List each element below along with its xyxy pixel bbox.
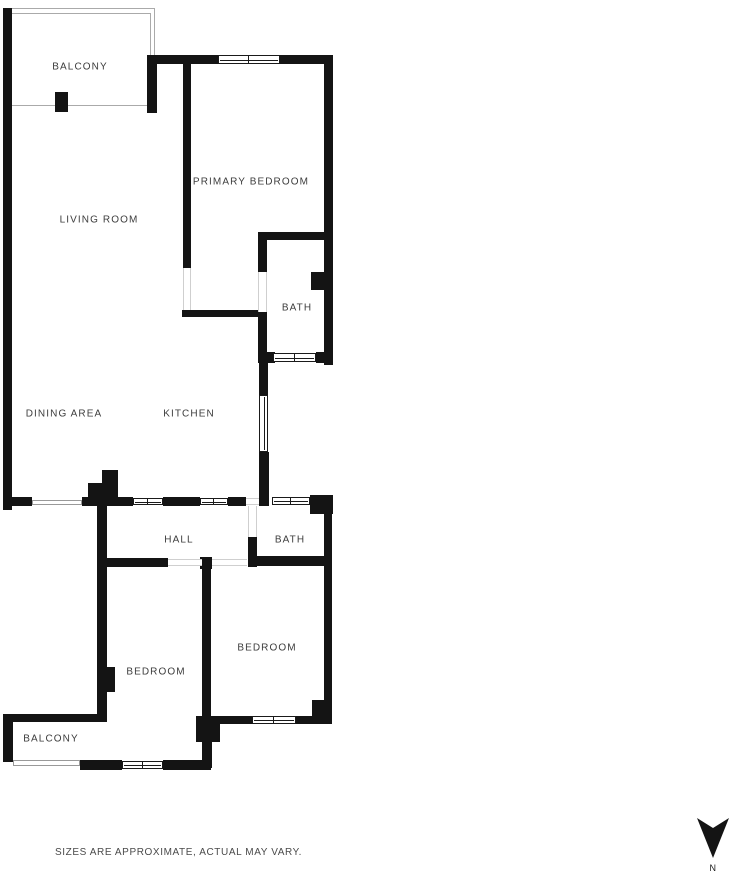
wall-segment	[228, 497, 246, 506]
wall-segment	[248, 556, 332, 566]
wall-segment	[8, 714, 98, 722]
wall-segment	[3, 8, 12, 510]
room-label-bath-bottom: BATH	[275, 535, 305, 546]
wall-segment	[311, 272, 325, 290]
window-symbol	[13, 760, 80, 766]
window-symbol	[273, 353, 316, 362]
room-label-living-room: LIVING ROOM	[60, 215, 139, 226]
wall-segment	[211, 716, 252, 724]
north-label: N	[696, 863, 730, 872]
window-symbol	[252, 716, 296, 724]
compass: N	[696, 816, 730, 872]
wall-segment	[183, 57, 191, 268]
wall-segment	[80, 760, 122, 770]
wall-segment	[259, 452, 269, 506]
wall-segment	[163, 497, 200, 506]
room-label-bedroom-left: BEDROOM	[126, 667, 185, 678]
wall-segment	[312, 700, 332, 722]
wall-segment	[182, 310, 263, 317]
door-opening	[246, 498, 259, 505]
door-opening	[183, 268, 191, 310]
wall-segment	[202, 558, 211, 718]
wall-segment	[55, 92, 68, 112]
room-label-bath-top: BATH	[282, 303, 312, 314]
door-opening	[258, 272, 267, 312]
room-label-primary-bedroom: PRIMARY BEDROOM	[193, 177, 309, 188]
wall-segment	[324, 495, 332, 722]
wall-segment	[258, 232, 267, 272]
wall-segment	[102, 470, 118, 484]
window-symbol	[32, 500, 82, 505]
wall-segment	[324, 55, 333, 365]
wall-segment	[3, 497, 32, 506]
disclaimer-text: SIZES ARE APPROXIMATE, ACTUAL MAY VARY.	[55, 847, 302, 858]
room-label-dining-area: DINING AREA	[26, 409, 103, 420]
window-symbol	[122, 761, 163, 769]
wall-segment	[82, 497, 133, 506]
room-label-balcony-top: BALCONY	[52, 62, 108, 73]
wall-segment	[262, 232, 333, 240]
door-opening	[168, 559, 202, 566]
door-opening	[248, 506, 257, 537]
wall-segment	[147, 55, 157, 113]
floor-plan: BALCONY PRIMARY BEDROOM LIVING ROOM BATH…	[0, 0, 736, 872]
wall-segment	[97, 506, 107, 722]
room-label-bedroom-right: BEDROOM	[237, 643, 296, 654]
wall-segment	[258, 312, 267, 355]
window-symbol	[133, 498, 163, 505]
room-label-hall: HALL	[164, 535, 193, 546]
window-symbol	[218, 55, 280, 64]
room-label-balcony-bottom: BALCONY	[23, 734, 79, 745]
wall-segment	[107, 667, 115, 692]
window-symbol	[272, 497, 310, 505]
room-label-kitchen: KITCHEN	[163, 409, 215, 420]
door-opening	[212, 559, 247, 566]
window-symbol	[200, 498, 228, 505]
north-arrow-icon	[696, 816, 730, 860]
wall-segment	[259, 352, 268, 396]
wall-segment	[163, 760, 211, 770]
balcony-outline-inner	[10, 13, 151, 106]
wall-segment	[316, 352, 333, 363]
window-symbol	[259, 395, 268, 452]
wall-segment	[107, 558, 168, 567]
